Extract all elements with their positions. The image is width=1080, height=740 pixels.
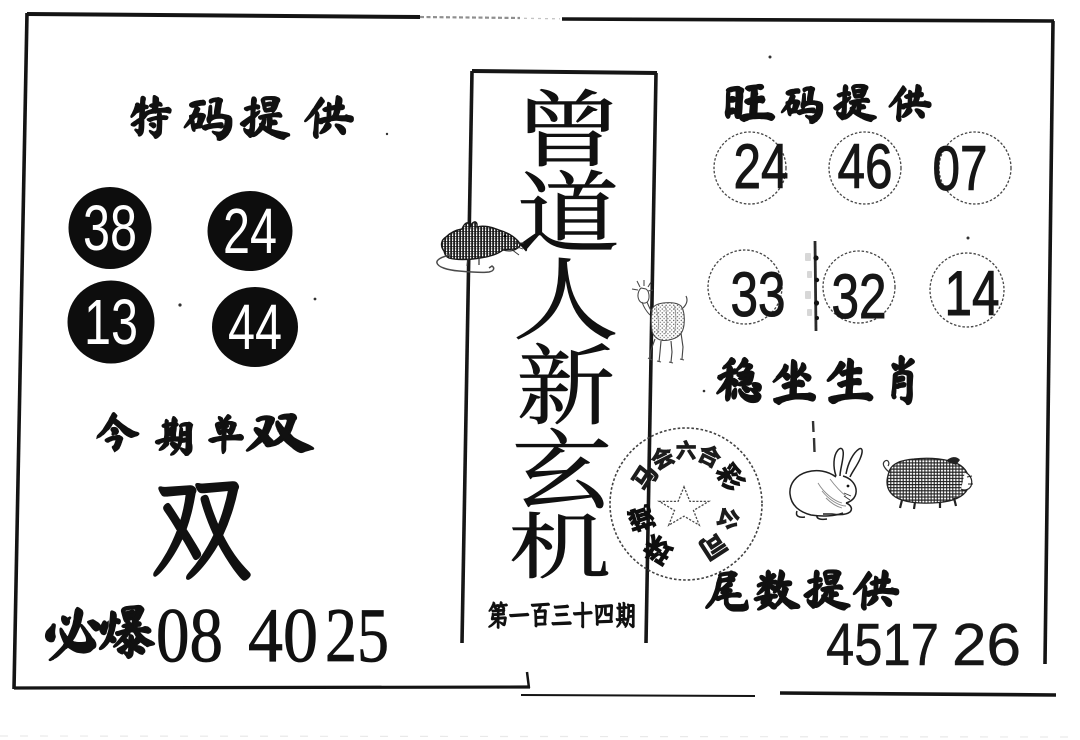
svg-text:40: 40 bbox=[248, 592, 318, 678]
svg-text:33: 33 bbox=[731, 260, 786, 330]
svg-text:24: 24 bbox=[223, 195, 277, 267]
svg-text:08: 08 bbox=[156, 592, 223, 678]
svg-text:26: 26 bbox=[952, 612, 1021, 678]
svg-text:13: 13 bbox=[84, 286, 138, 358]
svg-text:46: 46 bbox=[838, 132, 893, 202]
svg-text:38: 38 bbox=[83, 192, 137, 264]
svg-text:4517: 4517 bbox=[826, 612, 939, 678]
svg-text:32: 32 bbox=[832, 262, 887, 332]
svg-text:25: 25 bbox=[325, 592, 389, 678]
svg-text:24: 24 bbox=[734, 132, 789, 202]
svg-text:07: 07 bbox=[933, 134, 988, 204]
svg-text:44: 44 bbox=[228, 291, 282, 363]
svg-text:14: 14 bbox=[945, 259, 1000, 329]
